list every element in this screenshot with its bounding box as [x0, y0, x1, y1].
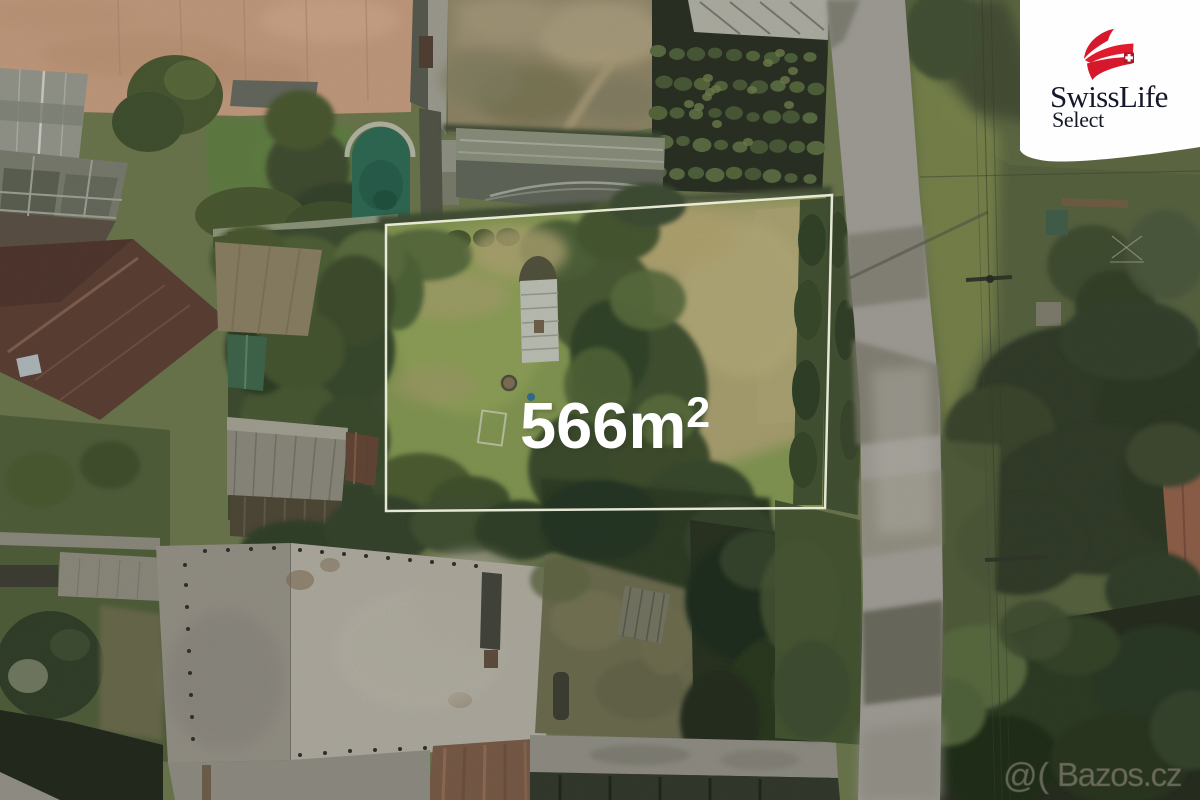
svg-text:Select: Select — [1052, 107, 1104, 132]
svg-text:Bazos.cz: Bazos.cz — [1057, 756, 1181, 793]
svg-text:566m2: 566m2 — [520, 389, 710, 462]
svg-text:@(: @( — [1003, 757, 1050, 795]
